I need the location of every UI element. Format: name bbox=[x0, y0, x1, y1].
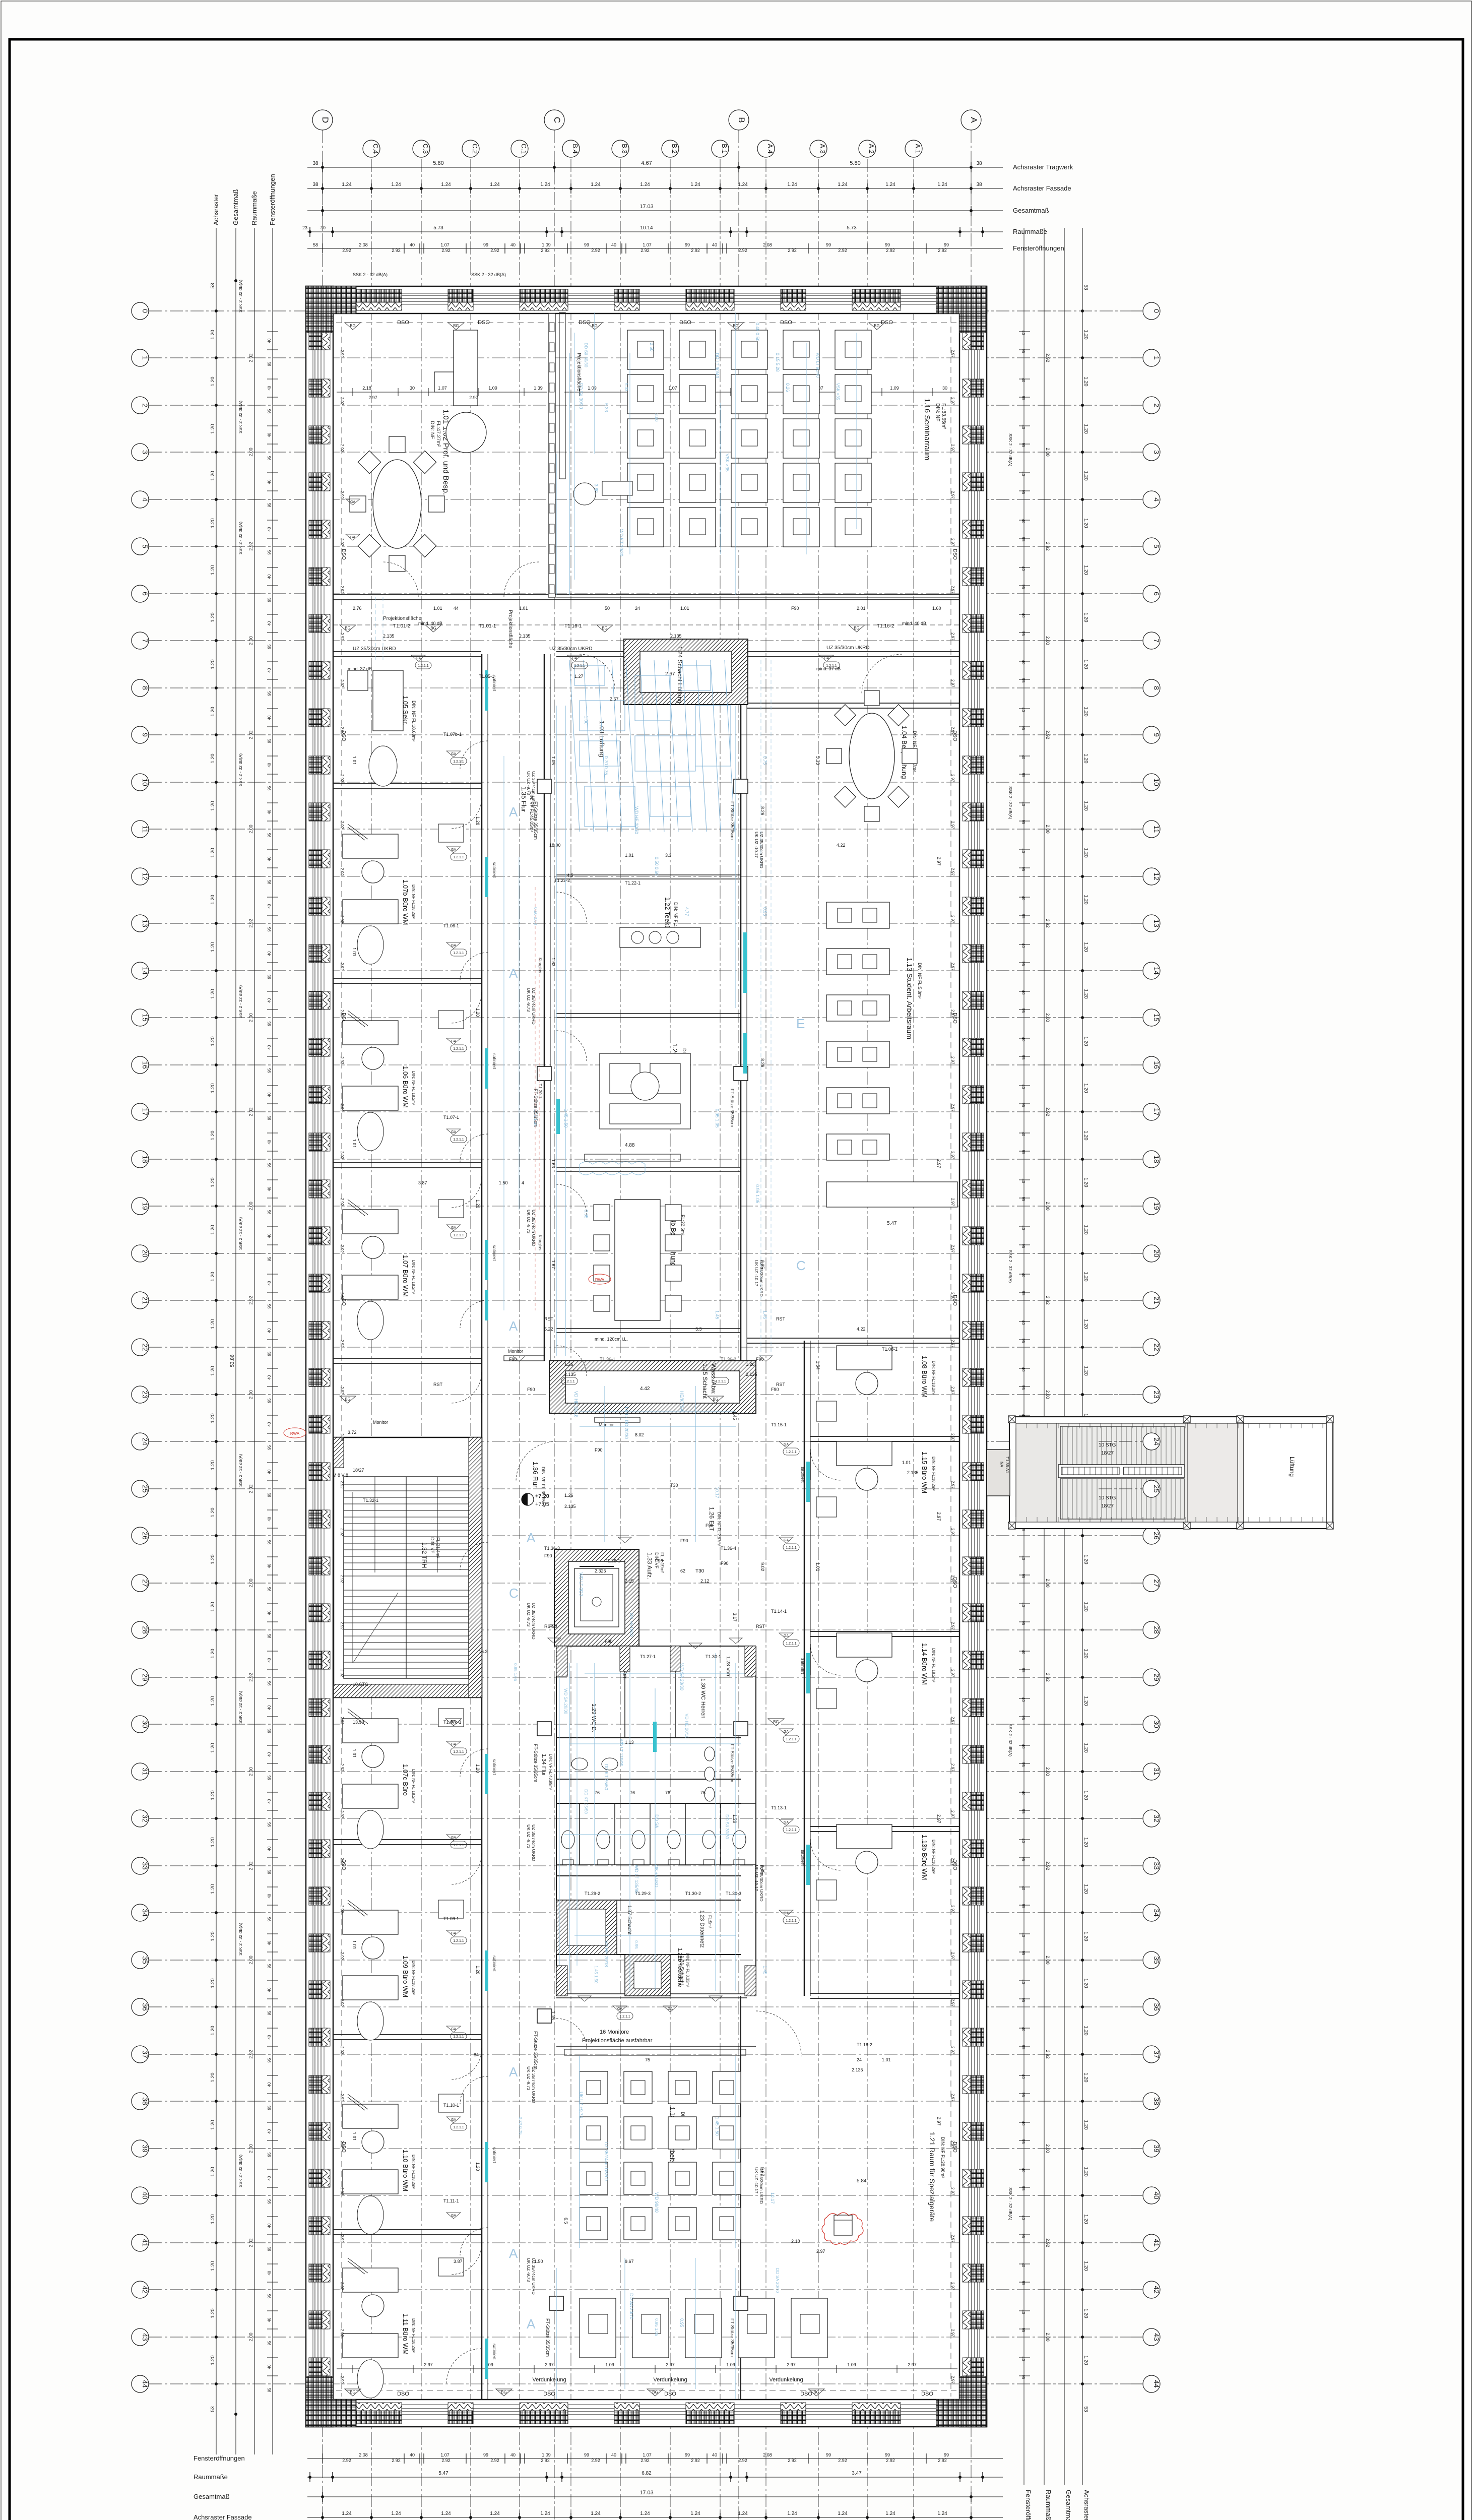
svg-text:A: A bbox=[527, 2316, 536, 2332]
svg-text:1.20: 1.20 bbox=[210, 1790, 216, 1800]
svg-text:2: 2 bbox=[1152, 403, 1161, 407]
svg-text:3.3: 3.3 bbox=[665, 853, 672, 858]
svg-text:1.24: 1.24 bbox=[690, 2511, 700, 2516]
svg-text:15: 15 bbox=[1152, 1014, 1161, 1022]
svg-text:2.92: 2.92 bbox=[340, 2282, 344, 2290]
svg-text:4.42: 4.42 bbox=[640, 1386, 650, 1392]
svg-text:UZ 35/30cm UKRD: UZ 35/30cm UKRD bbox=[353, 646, 396, 652]
svg-text:21: 21 bbox=[141, 1296, 149, 1304]
svg-text:95: 95 bbox=[1021, 1621, 1026, 1625]
svg-text:DIN: NF: DIN: NF bbox=[935, 403, 940, 421]
svg-text:1.20: 1.20 bbox=[1083, 1931, 1088, 1941]
svg-text:1.2.1.1: 1.2.1.1 bbox=[786, 1546, 797, 1550]
svg-text:95: 95 bbox=[1021, 2375, 1026, 2379]
svg-text:2.97: 2.97 bbox=[950, 727, 955, 735]
svg-text:16: 16 bbox=[1152, 1061, 1161, 1069]
svg-text:2.97: 2.97 bbox=[936, 1814, 941, 1823]
svg-text:11: 11 bbox=[141, 826, 149, 833]
svg-text:40: 40 bbox=[410, 2452, 415, 2458]
svg-text:40: 40 bbox=[1021, 2121, 1026, 2126]
svg-text:40: 40 bbox=[267, 1658, 272, 1662]
svg-text:FL:83.65m²: FL:83.65m² bbox=[941, 403, 946, 429]
svg-text:53: 53 bbox=[1083, 284, 1088, 290]
svg-text:Gesamtmaß: Gesamtmaß bbox=[232, 189, 239, 225]
svg-text:5: 5 bbox=[141, 544, 149, 548]
svg-text:1.20: 1.20 bbox=[210, 989, 216, 999]
svg-text:17.03: 17.03 bbox=[639, 204, 654, 210]
svg-text:1.2.1.1: 1.2.1.1 bbox=[786, 1738, 797, 1741]
svg-text:UK UZ +9.73: UK UZ +9.73 bbox=[579, 2092, 584, 2118]
svg-text:10.14: 10.14 bbox=[640, 225, 653, 231]
svg-text:2.97: 2.97 bbox=[936, 1512, 941, 1521]
svg-text:UK UZ -10.17: UK UZ -10.17 bbox=[754, 832, 759, 858]
svg-text:2.92: 2.92 bbox=[1045, 2238, 1050, 2247]
svg-text:DD Sä: DD Sä bbox=[654, 1814, 659, 1828]
svg-text:40: 40 bbox=[1021, 2357, 1026, 2361]
svg-text:1.20: 1.20 bbox=[475, 1966, 480, 1975]
svg-text:40: 40 bbox=[1021, 2216, 1026, 2220]
svg-text:2.97: 2.97 bbox=[950, 1151, 955, 1159]
svg-text:2.97: 2.97 bbox=[950, 1528, 955, 1536]
svg-text:76: 76 bbox=[665, 1790, 670, 1795]
svg-text:40: 40 bbox=[712, 2452, 717, 2458]
svg-text:40: 40 bbox=[267, 2317, 272, 2322]
svg-text:2.135: 2.135 bbox=[519, 634, 531, 639]
svg-text:95: 95 bbox=[1021, 632, 1026, 636]
svg-text:95: 95 bbox=[267, 786, 272, 790]
svg-text:2.92: 2.92 bbox=[392, 2458, 401, 2463]
svg-text:1.01: 1.01 bbox=[352, 756, 357, 765]
svg-text:1.45 1.50: 1.45 1.50 bbox=[563, 1109, 568, 1128]
svg-text:1.01: 1.01 bbox=[352, 948, 357, 957]
svg-text:1.2.1.1: 1.2.1.1 bbox=[715, 1380, 726, 1383]
svg-text:A.1: A.1 bbox=[914, 144, 922, 154]
svg-text:40: 40 bbox=[1021, 331, 1026, 335]
svg-text:43: 43 bbox=[1152, 2333, 1161, 2341]
svg-text:95: 95 bbox=[1021, 1668, 1026, 1673]
svg-text:2.92: 2.92 bbox=[340, 1999, 344, 2007]
svg-text:A: A bbox=[509, 2064, 518, 2080]
svg-text:2.97: 2.97 bbox=[950, 2329, 955, 2337]
svg-text:BG: BG bbox=[602, 626, 608, 631]
svg-text:95: 95 bbox=[267, 1775, 272, 1780]
svg-text:44: 44 bbox=[1152, 2380, 1161, 2388]
svg-text:2.92: 2.92 bbox=[340, 821, 344, 829]
svg-text:SSK 2 - 32 dB(A): SSK 2 - 32 dB(A) bbox=[238, 753, 243, 786]
svg-text:2.97: 2.97 bbox=[950, 1481, 955, 1489]
svg-text:2.97: 2.97 bbox=[950, 1952, 955, 1960]
svg-text:40: 40 bbox=[611, 2452, 616, 2458]
svg-text:95: 95 bbox=[267, 644, 272, 649]
svg-text:1.2.1.1: 1.2.1.1 bbox=[564, 1380, 575, 1383]
svg-text:GA: GA bbox=[451, 1743, 456, 1746]
svg-text:9.67: 9.67 bbox=[760, 2167, 765, 2176]
svg-text:2.00: 2.00 bbox=[1045, 448, 1050, 457]
svg-text:F90: F90 bbox=[549, 1624, 557, 1629]
svg-text:1.20: 1.20 bbox=[1083, 471, 1088, 481]
svg-text:2.00: 2.00 bbox=[1045, 1579, 1050, 1588]
svg-text:95: 95 bbox=[267, 833, 272, 837]
svg-text:UZ 35/30cm UKRD: UZ 35/30cm UKRD bbox=[759, 832, 764, 868]
svg-text:2.92: 2.92 bbox=[340, 679, 344, 687]
svg-text:1.26: 1.26 bbox=[746, 1362, 755, 1367]
svg-text:FT-Stütze 35/35cm: FT-Stütze 35/35cm bbox=[533, 2031, 538, 2069]
svg-text:21: 21 bbox=[1152, 1296, 1161, 1304]
svg-text:95: 95 bbox=[267, 1917, 272, 1921]
svg-text:2.92: 2.92 bbox=[340, 1717, 344, 1725]
svg-text:16 Monitore: 16 Monitore bbox=[600, 2029, 629, 2035]
svg-text:2.92: 2.92 bbox=[340, 1198, 344, 1206]
svg-text:26: 26 bbox=[1152, 1532, 1161, 1540]
svg-text:40: 40 bbox=[267, 1517, 272, 1521]
svg-text:T1.26-1: T1.26-1 bbox=[605, 1558, 620, 1563]
svg-text:40: 40 bbox=[267, 1281, 272, 1285]
svg-text:1.20: 1.20 bbox=[475, 1008, 480, 1017]
svg-text:30: 30 bbox=[321, 225, 326, 230]
svg-text:99: 99 bbox=[826, 2452, 831, 2458]
svg-text:Lüftung: Lüftung bbox=[1289, 1457, 1296, 1477]
svg-text:40: 40 bbox=[267, 1422, 272, 1426]
svg-text:40: 40 bbox=[1021, 1273, 1026, 1278]
svg-text:1.20: 1.20 bbox=[210, 659, 216, 669]
svg-text:2.92: 2.92 bbox=[340, 2187, 344, 2195]
svg-text:2.92: 2.92 bbox=[340, 2235, 344, 2243]
svg-text:0.50 0.60: 0.50 0.60 bbox=[533, 907, 538, 925]
svg-text:40: 40 bbox=[267, 856, 272, 861]
svg-text:0.15 5.28: 0.15 5.28 bbox=[775, 353, 780, 372]
svg-text:2.92: 2.92 bbox=[1045, 2050, 1050, 2059]
svg-text:2.92: 2.92 bbox=[641, 248, 650, 253]
svg-text:40: 40 bbox=[1021, 1744, 1026, 1749]
svg-text:2.92: 2.92 bbox=[340, 1669, 344, 1677]
svg-text:1.45: 1.45 bbox=[732, 1411, 737, 1420]
svg-text:1.45 1.50: 1.45 1.50 bbox=[594, 1966, 599, 1984]
svg-text:2.97: 2.97 bbox=[950, 1763, 955, 1772]
svg-text:2.97: 2.97 bbox=[950, 538, 955, 546]
svg-text:1.20: 1.20 bbox=[1083, 2167, 1088, 2177]
svg-text:2.92: 2.92 bbox=[340, 774, 344, 782]
svg-text:1.20: 1.20 bbox=[1083, 1696, 1088, 1706]
svg-text:95: 95 bbox=[267, 2010, 272, 2015]
svg-text:95: 95 bbox=[267, 1822, 272, 1826]
svg-text:1.20: 1.20 bbox=[210, 895, 216, 905]
svg-text:F90: F90 bbox=[680, 1538, 688, 1543]
svg-text:10: 10 bbox=[141, 778, 149, 786]
svg-text:18: 18 bbox=[1152, 1155, 1161, 1163]
svg-text:C.1: C.1 bbox=[520, 144, 528, 154]
svg-text:2.97: 2.97 bbox=[950, 1433, 955, 1441]
svg-text:VD HE 20/18: VD HE 20/18 bbox=[684, 1714, 689, 1739]
svg-text:1.24: 1.24 bbox=[342, 182, 352, 187]
svg-text:SSK 2 - 32 dB(A): SSK 2 - 32 dB(A) bbox=[238, 401, 243, 433]
svg-text:2.97: 2.97 bbox=[950, 1717, 955, 1725]
svg-text:1.20: 1.20 bbox=[210, 1554, 216, 1564]
svg-text:2.97: 2.97 bbox=[950, 2140, 955, 2149]
svg-text:M 8 V 8: M 8 V 8 bbox=[333, 1473, 348, 1478]
svg-text:2.97: 2.97 bbox=[950, 1104, 955, 1112]
svg-text:32: 32 bbox=[1152, 1814, 1161, 1822]
svg-text:95: 95 bbox=[1021, 585, 1026, 589]
svg-text:1.2.1.1: 1.2.1.1 bbox=[453, 952, 464, 955]
svg-text:7: 7 bbox=[1152, 639, 1161, 643]
svg-text:1.32 TRH: 1.32 TRH bbox=[421, 1542, 428, 1568]
svg-text:UK UZ -9.73: UK UZ -9.73 bbox=[526, 2066, 531, 2091]
svg-text:1.01: 1.01 bbox=[433, 606, 442, 611]
svg-text:95: 95 bbox=[267, 1163, 272, 1167]
svg-text:1.20: 1.20 bbox=[1083, 1366, 1088, 1376]
svg-text:BG: BG bbox=[773, 1720, 779, 1724]
svg-text:1.2.1.1: 1.2.1.1 bbox=[786, 1829, 797, 1832]
svg-text:0.75: 0.75 bbox=[762, 756, 767, 765]
svg-text:1.24: 1.24 bbox=[787, 2511, 797, 2516]
svg-text:95: 95 bbox=[1021, 914, 1026, 919]
svg-text:2.92: 2.92 bbox=[392, 248, 401, 253]
svg-text:Monitor: Monitor bbox=[373, 1420, 388, 1425]
svg-text:RWA: RWA bbox=[595, 1278, 605, 1282]
svg-text:DD Sä 30/30: DD Sä 30/30 bbox=[725, 1814, 730, 1839]
svg-text:GA: GA bbox=[416, 657, 421, 660]
svg-text:1.01: 1.01 bbox=[625, 853, 634, 858]
svg-text:T1.07-1: T1.07-1 bbox=[443, 1115, 459, 1120]
svg-text:14: 14 bbox=[141, 967, 149, 975]
svg-text:2.92: 2.92 bbox=[340, 538, 344, 546]
svg-text:8.02: 8.02 bbox=[635, 1432, 644, 1437]
svg-text:1.20: 1.20 bbox=[1083, 895, 1088, 905]
svg-text:6: 6 bbox=[1152, 592, 1161, 596]
svg-text:4.88: 4.88 bbox=[625, 1143, 635, 1148]
svg-text:GA: GA bbox=[784, 1634, 789, 1638]
svg-text:T1.01-1: T1.01-1 bbox=[479, 623, 496, 629]
svg-text:1.20: 1.20 bbox=[475, 1764, 480, 1773]
svg-text:58: 58 bbox=[313, 242, 318, 247]
svg-text:10: 10 bbox=[1152, 778, 1161, 786]
svg-text:1.21 Raum für Spezialgeräte: 1.21 Raum für Spezialgeräte bbox=[928, 2132, 936, 2222]
svg-text:40: 40 bbox=[1021, 990, 1026, 995]
svg-text:23: 23 bbox=[141, 1391, 149, 1399]
svg-text:1.20: 1.20 bbox=[1083, 2072, 1088, 2083]
svg-text:GA: GA bbox=[784, 1912, 789, 1915]
svg-text:2.92: 2.92 bbox=[248, 1107, 253, 1116]
svg-text:5.33: 5.33 bbox=[815, 756, 820, 765]
svg-text:2.92: 2.92 bbox=[342, 248, 351, 253]
svg-text:2.97: 2.97 bbox=[950, 915, 955, 923]
svg-text:75: 75 bbox=[645, 2057, 650, 2062]
svg-text:95: 95 bbox=[1021, 2328, 1026, 2333]
svg-text:40: 40 bbox=[1021, 1886, 1026, 1891]
svg-text:95: 95 bbox=[1021, 2139, 1026, 2144]
svg-text:3.17: 3.17 bbox=[732, 1613, 737, 1622]
svg-text:A: A bbox=[969, 117, 979, 123]
svg-text:2.97: 2.97 bbox=[950, 1575, 955, 1583]
svg-text:40: 40 bbox=[1021, 1980, 1026, 1984]
svg-text:2.97: 2.97 bbox=[950, 1905, 955, 1913]
svg-text:1.39: 1.39 bbox=[534, 386, 543, 391]
svg-text:2.92: 2.92 bbox=[788, 248, 797, 253]
svg-text:40: 40 bbox=[267, 1799, 272, 1803]
svg-text:2.135: 2.135 bbox=[564, 1504, 576, 1509]
svg-text:Gesamtmaß: Gesamtmaß bbox=[1065, 2490, 1072, 2520]
svg-text:T1.07b-1: T1.07b-1 bbox=[443, 732, 462, 737]
svg-text:18.00: 18.00 bbox=[549, 843, 561, 848]
svg-text:40: 40 bbox=[712, 242, 717, 247]
svg-text:95: 95 bbox=[1021, 1998, 1026, 2002]
svg-text:40: 40 bbox=[1021, 1603, 1026, 1607]
svg-text:1.07: 1.07 bbox=[440, 242, 450, 247]
svg-text:Projektionsfläche: Projektionsfläche bbox=[383, 616, 422, 621]
svg-text:42: 42 bbox=[141, 2286, 149, 2294]
svg-text:40: 40 bbox=[1021, 1650, 1026, 1655]
svg-text:GA: GA bbox=[350, 536, 355, 539]
svg-text:1.20: 1.20 bbox=[1083, 1177, 1088, 1187]
svg-text:2.92: 2.92 bbox=[340, 1056, 344, 1064]
svg-text:F90: F90 bbox=[721, 1561, 729, 1566]
svg-text:SSK 2 - 32 dB(A): SSK 2 - 32 dB(A) bbox=[353, 272, 388, 277]
svg-text:24: 24 bbox=[635, 606, 640, 611]
svg-text:1.07: 1.07 bbox=[438, 386, 447, 391]
svg-text:1.09: 1.09 bbox=[588, 386, 597, 391]
svg-text:0.95 1.05: 0.95 1.05 bbox=[513, 1663, 518, 1681]
svg-text:40: 40 bbox=[1021, 802, 1026, 806]
svg-text:17: 17 bbox=[141, 1108, 149, 1116]
svg-text:2.97: 2.97 bbox=[950, 1245, 955, 1253]
svg-text:2.92: 2.92 bbox=[788, 2458, 797, 2463]
svg-text:10 STG: 10 STG bbox=[1099, 1442, 1116, 1448]
svg-text:95: 95 bbox=[267, 1256, 272, 1261]
svg-text:1.20: 1.20 bbox=[1083, 1649, 1088, 1659]
svg-text:2.92: 2.92 bbox=[886, 2458, 895, 2463]
svg-text:1: 1 bbox=[1152, 356, 1161, 360]
svg-text:40: 40 bbox=[1021, 2027, 1026, 2032]
svg-text:1.2.1.1: 1.2.1.1 bbox=[826, 664, 837, 668]
svg-text:1.20: 1.20 bbox=[475, 2162, 480, 2171]
svg-text:T1.18-2: T1.18-2 bbox=[857, 2042, 872, 2047]
svg-text:RST: RST bbox=[544, 1316, 554, 1321]
svg-text:1.2.1.1: 1.2.1.1 bbox=[453, 1138, 464, 1142]
svg-text:1.2.1.1: 1.2.1.1 bbox=[786, 1451, 797, 1454]
svg-text:2.35: 2.35 bbox=[760, 1260, 765, 1269]
svg-text:6.5: 6.5 bbox=[563, 2218, 568, 2224]
svg-text:DD KT 25/50: DD KT 25/50 bbox=[584, 1789, 589, 1814]
svg-text:1.13: 1.13 bbox=[625, 1740, 634, 1745]
svg-text:RST: RST bbox=[433, 1382, 443, 1387]
svg-text:Verdunkelung: Verdunkelung bbox=[653, 2377, 687, 2383]
svg-text:T1.36-1: T1.36-1 bbox=[600, 1357, 615, 1362]
svg-text:1.2.1.1: 1.2.1.1 bbox=[786, 1642, 797, 1646]
svg-text:12: 12 bbox=[1152, 872, 1161, 880]
svg-text:2.97: 2.97 bbox=[950, 1810, 955, 1818]
svg-text:0.70 0.75: 0.70 0.75 bbox=[518, 2117, 523, 2135]
svg-text:28: 28 bbox=[141, 1626, 149, 1634]
svg-text:DIN: NF FL:18.2m²: DIN: NF FL:18.2m² bbox=[411, 1961, 416, 1995]
svg-text:DIN: NF FL:18.2m²: DIN: NF FL:18.2m² bbox=[411, 1071, 416, 1105]
svg-text:2.92: 2.92 bbox=[340, 1433, 344, 1441]
svg-text:1.20: 1.20 bbox=[1083, 707, 1088, 717]
svg-text:1.00: 1.00 bbox=[584, 716, 589, 725]
svg-text:2.97: 2.97 bbox=[950, 1669, 955, 1677]
svg-text:20: 20 bbox=[1152, 1249, 1161, 1257]
svg-text:40: 40 bbox=[267, 904, 272, 908]
svg-text:DIN: NF FL:18.2m²: DIN: NF FL:18.2m² bbox=[931, 1361, 936, 1395]
svg-text:1.09: 1.09 bbox=[890, 386, 899, 391]
svg-text:95: 95 bbox=[267, 1869, 272, 1874]
svg-text:Fensteröffnungen: Fensteröffnungen bbox=[1013, 244, 1064, 252]
svg-text:1.09: 1.09 bbox=[488, 386, 497, 391]
svg-text:UK UZ -9.73: UK UZ -9.73 bbox=[526, 1603, 531, 1627]
svg-text:T1.13-1: T1.13-1 bbox=[771, 1805, 787, 1810]
svg-text:1.20: 1.20 bbox=[210, 471, 216, 481]
svg-text:C: C bbox=[552, 117, 562, 123]
svg-text:2.92: 2.92 bbox=[591, 248, 600, 253]
svg-text:mind. 37 dB: mind. 37 dB bbox=[348, 666, 372, 671]
svg-text:WD LT 135/95: WD LT 135/95 bbox=[634, 1865, 639, 1894]
svg-text:40: 40 bbox=[1021, 1933, 1026, 1937]
svg-text:DIN: NF FL:18.2m²: DIN: NF FL:18.2m² bbox=[931, 1648, 936, 1682]
svg-text:1.20: 1.20 bbox=[210, 707, 216, 717]
svg-text:99: 99 bbox=[885, 2452, 890, 2458]
svg-text:2.92: 2.92 bbox=[340, 2140, 344, 2149]
svg-text:2.92: 2.92 bbox=[340, 491, 344, 499]
svg-text:BG: BG bbox=[713, 1397, 719, 1402]
svg-text:1.01: 1.01 bbox=[352, 1139, 357, 1148]
svg-text:BG: BG bbox=[345, 1397, 351, 1402]
svg-text:95: 95 bbox=[1021, 1197, 1026, 1202]
svg-text:A.3: A.3 bbox=[819, 144, 826, 154]
svg-text:1.09: 1.09 bbox=[542, 242, 551, 247]
svg-text:2.00: 2.00 bbox=[1045, 1767, 1050, 1776]
svg-text:40: 40 bbox=[267, 2176, 272, 2180]
svg-text:1.26: 1.26 bbox=[564, 1493, 573, 1498]
svg-text:1.20: 1.20 bbox=[210, 1413, 216, 1423]
svg-text:35: 35 bbox=[141, 1956, 149, 1964]
svg-text:DIN: NF FL:18.2m²: DIN: NF FL:18.2m² bbox=[931, 1457, 936, 1491]
svg-text:4.77: 4.77 bbox=[684, 907, 689, 916]
svg-text:37: 37 bbox=[1152, 2050, 1161, 2058]
svg-text:2.97: 2.97 bbox=[950, 633, 955, 641]
svg-text:1.20: 1.20 bbox=[1083, 565, 1088, 575]
svg-text:DIN: NF FL:18.2m²: DIN: NF FL:18.2m² bbox=[411, 2318, 416, 2353]
svg-text:95: 95 bbox=[267, 361, 272, 366]
svg-text:95: 95 bbox=[1021, 1574, 1026, 1579]
svg-text:2.92: 2.92 bbox=[340, 1104, 344, 1112]
svg-text:1.03 Lüftung: 1.03 Lüftung bbox=[598, 721, 606, 757]
svg-text:3.60: 3.60 bbox=[654, 413, 659, 422]
svg-text:1.24: 1.24 bbox=[591, 2511, 601, 2516]
svg-text:2.92: 2.92 bbox=[591, 2458, 600, 2463]
svg-text:99: 99 bbox=[685, 2452, 690, 2458]
svg-text:DSO: DSO bbox=[664, 2391, 676, 2397]
svg-text:40: 40 bbox=[267, 1233, 272, 1238]
svg-text:40: 40 bbox=[510, 2452, 516, 2458]
svg-text:+7.05: +7.05 bbox=[535, 1501, 549, 1507]
svg-text:DD SA 20/70: DD SA 20/70 bbox=[775, 2268, 780, 2293]
svg-text:1.24 Schacht Lüftung: 1.24 Schacht Lüftung bbox=[676, 646, 683, 703]
svg-text:2.50: 2.50 bbox=[649, 343, 654, 352]
svg-text:WD LT Ø20: WD LT Ø20 bbox=[579, 1572, 584, 1596]
svg-text:40: 40 bbox=[1021, 1556, 1026, 1560]
svg-text:2.92: 2.92 bbox=[340, 2376, 344, 2384]
svg-text:2.92: 2.92 bbox=[340, 1528, 344, 1536]
svg-text:GA: GA bbox=[784, 1730, 789, 1734]
svg-text:12: 12 bbox=[141, 872, 149, 880]
svg-text:GA: GA bbox=[451, 2028, 456, 2031]
svg-text:D: D bbox=[321, 117, 330, 123]
svg-text:40: 40 bbox=[1021, 896, 1026, 901]
svg-text:T1.08-1: T1.08-1 bbox=[882, 1347, 898, 1352]
svg-text:2.92: 2.92 bbox=[1045, 353, 1050, 362]
svg-text:2.92: 2.92 bbox=[340, 1010, 344, 1018]
svg-text:30: 30 bbox=[1152, 1720, 1161, 1728]
svg-text:95: 95 bbox=[1021, 867, 1026, 871]
